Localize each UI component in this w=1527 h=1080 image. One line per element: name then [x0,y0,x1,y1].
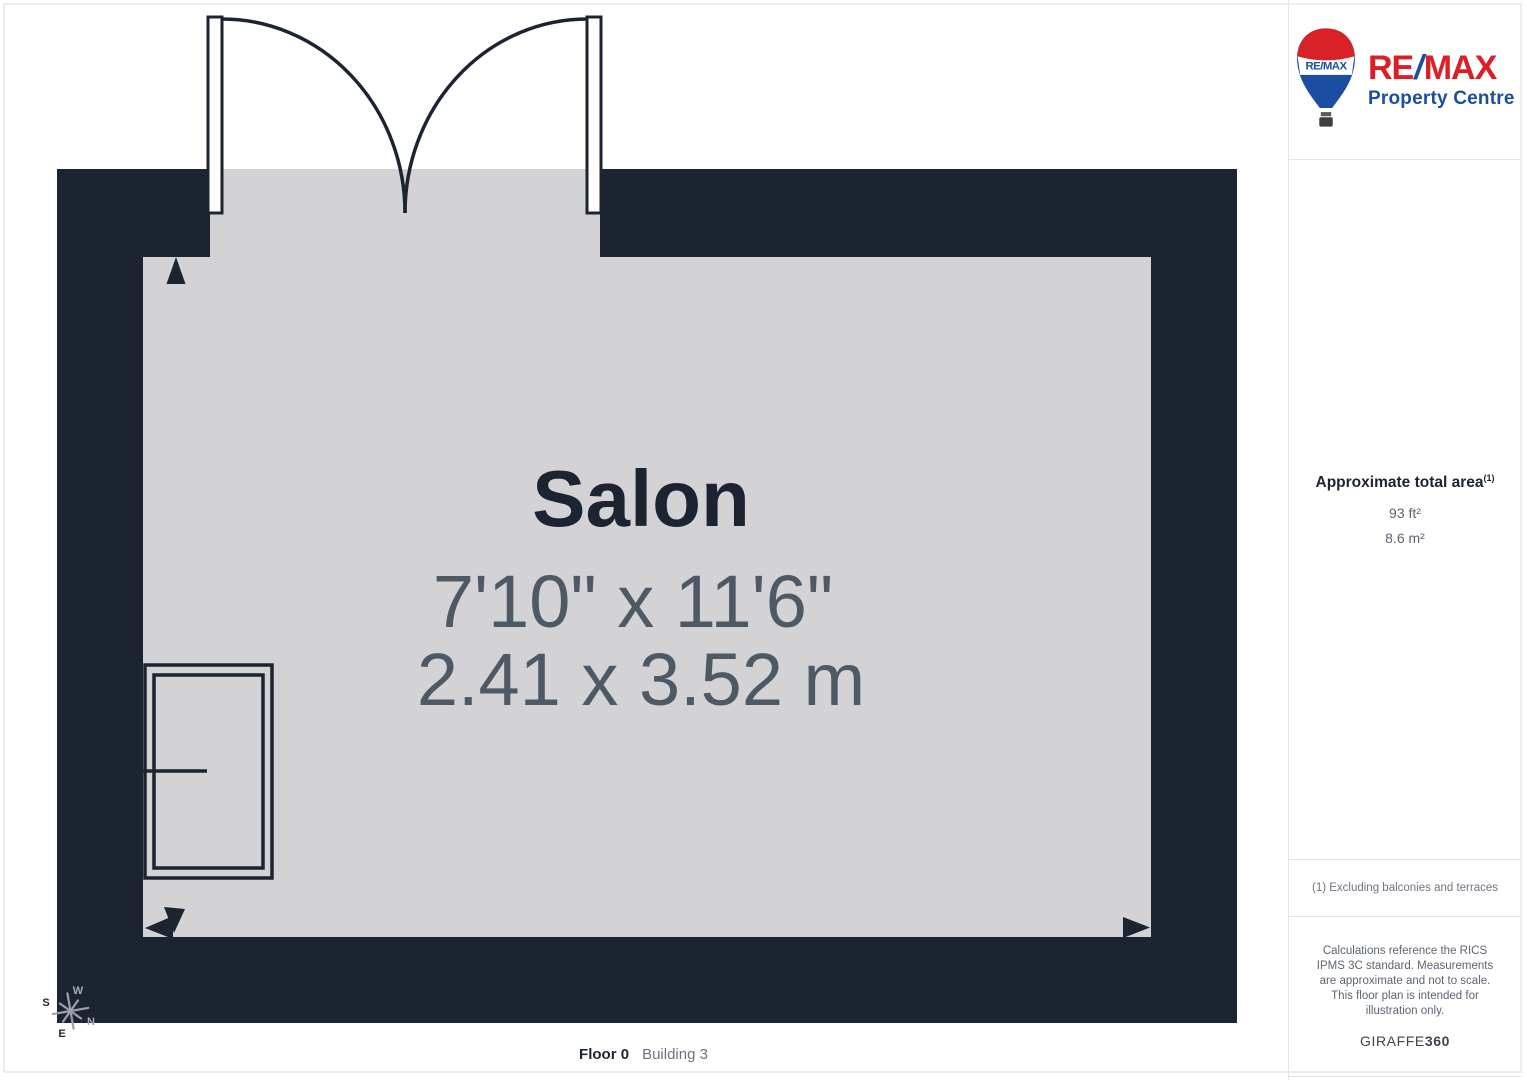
wordmark-slash: / [1413,49,1423,87]
total-area-imperial: 93 ft² [1389,505,1421,521]
room-dimensions-imperial: 7'10" x 11'6" [433,560,833,643]
room-dimensions-metric: 2.41 x 3.52 m [417,638,865,721]
total-area-heading: Approximate total area(1) [1316,473,1495,492]
info-sidebar: RE/MAX RE/MAX Property Centre Approximat… [1288,0,1521,1080]
wall-left [57,169,143,1023]
door-leaf-left [208,17,222,213]
wall-top-right-segment [600,169,1237,257]
total-area-heading-superscript: (1) [1483,473,1494,483]
disclaimer-section: Calculations reference the RICS IPMS 3C … [1289,917,1521,1077]
total-area-section: Approximate total area(1) 93 ft² 8.6 m² [1289,160,1521,860]
wordmark-max: MAX [1424,49,1497,87]
wall-bottom [57,937,1237,1023]
door-leaf-right [587,17,601,213]
floorplan-canvas: S W N E Salon 7'10" x 11'6" 2.41 x 3.52 … [0,0,1287,1080]
total-area-metric: 8.6 m² [1385,530,1425,546]
wall-right [1151,169,1237,1023]
giraffe360-number: 360 [1425,1033,1450,1049]
remax-wordmark: RE/MAX Property Centre [1368,51,1515,110]
building-label: Building 3 [642,1046,708,1063]
room-name-label: Salon [532,454,750,543]
giraffe360-name: GIRAFFE [1360,1033,1425,1049]
compass-south-label: S [42,997,49,1009]
footnote-section: (1) Excluding balconies and terraces [1289,860,1521,917]
remax-balloon-icon: RE/MAX [1295,26,1357,130]
balloon-band-label: RE/MAX [1305,61,1347,73]
floor-label: Floor 0 [579,1046,629,1063]
compass-west-label: W [73,985,84,997]
room-floor [143,169,1151,937]
compass-east-label: E [58,1028,65,1040]
total-area-heading-text: Approximate total area [1316,475,1484,492]
wall-top-left-segment [57,169,210,257]
compass-north-label: N [87,1016,95,1028]
remax-wordmark-main: RE/MAX [1368,51,1515,85]
giraffe360-credit: GIRAFFE360 [1360,1034,1450,1049]
floor-caption: Floor 0 Building 3 [0,1046,1287,1063]
wordmark-re: RE [1368,49,1413,87]
footnote-text: (1) Excluding balconies and terraces [1312,882,1498,894]
disclaimer-text: Calculations reference the RICS IPMS 3C … [1311,944,1499,1019]
remax-wordmark-sub: Property Centre [1368,88,1515,110]
brand-section: RE/MAX RE/MAX Property Centre [1289,0,1521,160]
